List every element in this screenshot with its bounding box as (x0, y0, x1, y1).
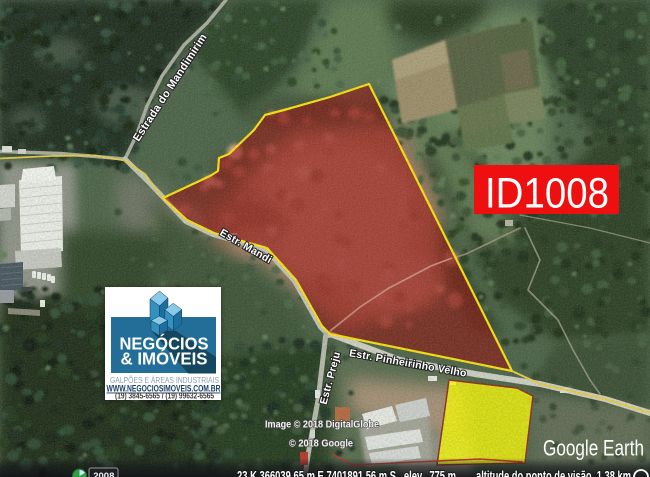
svg-text:(19) 3845-6565 / (19) 99632-65: (19) 3845-6565 / (19) 99632-6565 (115, 391, 214, 400)
svg-text:& IMÓVEIS: & IMÓVEIS (121, 348, 208, 369)
